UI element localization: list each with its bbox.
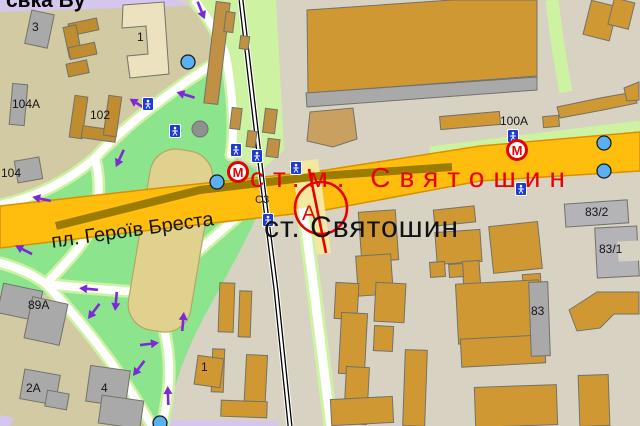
stop-dot[interactable]: [153, 416, 167, 426]
building-label: 83: [531, 305, 544, 317]
building-label: 83/2: [585, 206, 608, 218]
building-label: 89А: [28, 299, 49, 311]
metro-station-label: ст.м. Святошин: [250, 164, 574, 192]
building-label: 104А: [12, 98, 40, 110]
street-name-top: свка Ву: [6, 0, 85, 11]
pedestrian-crossing-icon: [169, 124, 181, 138]
stop-dot[interactable]: [181, 55, 195, 69]
building-label: 104: [1, 167, 21, 179]
stop-dot[interactable]: [210, 175, 224, 189]
road-ref-label: С3: [255, 195, 269, 206]
pedestrian-crossing-icon: [230, 143, 242, 157]
park-feature-dot: [192, 121, 208, 137]
metro-letter: М: [512, 143, 523, 158]
stop-dot[interactable]: [597, 136, 611, 150]
metro-icon[interactable]: М: [506, 139, 528, 161]
building-label: 83/1: [599, 243, 622, 255]
pedestrian-crossing-icon: [142, 97, 154, 111]
stop-dot[interactable]: [597, 164, 611, 178]
building-label: 100А: [500, 115, 528, 127]
building-label: 2А: [26, 382, 41, 394]
rail-station-label: ст. Святошин: [264, 213, 459, 243]
metro-icon[interactable]: М: [227, 161, 249, 183]
building-label: 1: [137, 31, 144, 43]
metro-letter: М: [233, 165, 244, 180]
building-label: 1: [201, 361, 208, 373]
bottom-road-lavender: [166, 420, 278, 426]
building-label: 4: [101, 382, 108, 394]
city-map-canvas[interactable]: М М А свка Ву пл. Героїв Бреста ст.м. Св…: [0, 0, 640, 426]
building-label: 102: [90, 109, 110, 121]
pedestrian-crossing-icon: [251, 149, 263, 163]
building-label: 3: [32, 21, 39, 33]
